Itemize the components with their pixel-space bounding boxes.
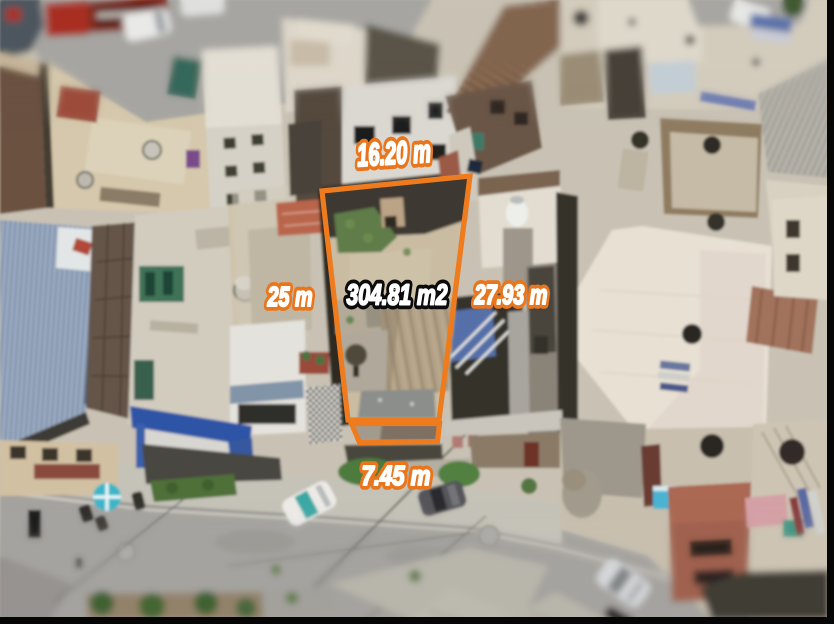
svg-text:7.45 m: 7.45 m <box>362 460 431 491</box>
svg-text:27.93 m: 27.93 m <box>474 279 548 310</box>
svg-text:25 m: 25 m <box>267 281 313 312</box>
svg-text:16.20 m: 16.20 m <box>356 133 432 173</box>
svg-text:304.81 m2: 304.81 m2 <box>347 280 448 312</box>
